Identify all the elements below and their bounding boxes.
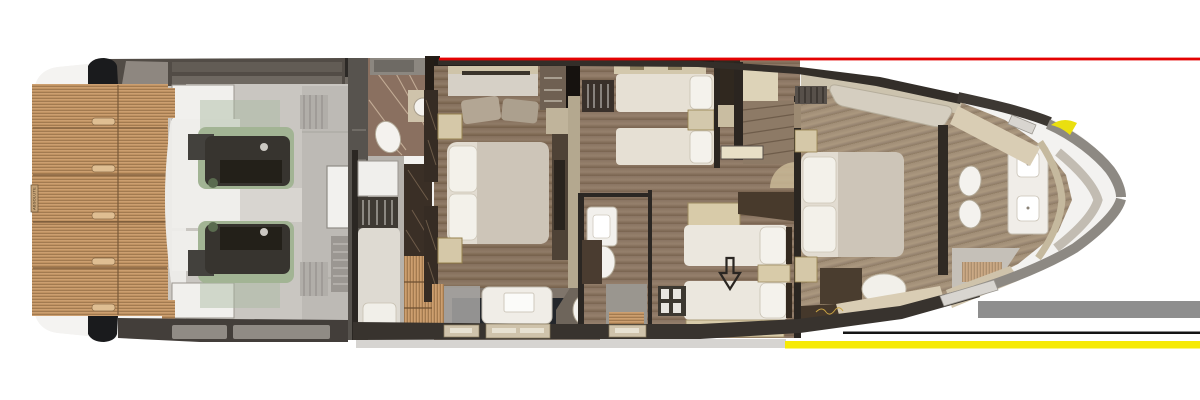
svg-text:ABSOLUTE: ABSOLUTE bbox=[32, 187, 37, 210]
